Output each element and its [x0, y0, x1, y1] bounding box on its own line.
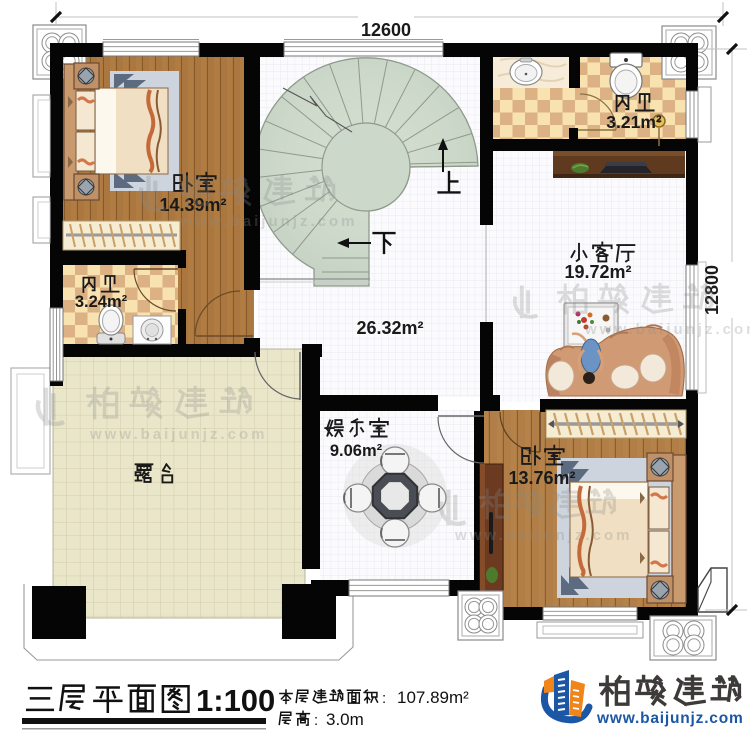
svg-text:www.baijunjz.com: www.baijunjz.com: [454, 527, 632, 544]
svg-text:107.89m²: 107.89m²: [397, 688, 469, 707]
svg-text:12600: 12600: [361, 20, 411, 40]
svg-text:3.21m²: 3.21m²: [606, 112, 662, 132]
svg-text:1:100: 1:100: [196, 683, 275, 718]
svg-text:3.0m: 3.0m: [326, 710, 364, 729]
svg-text:www.baijunjz.com: www.baijunjz.com: [179, 213, 357, 230]
svg-text:www.baijunjz.com: www.baijunjz.com: [596, 710, 744, 727]
svg-text::: :: [382, 690, 386, 707]
svg-text:9.06m²: 9.06m²: [330, 442, 383, 460]
svg-text:www.baijunjz.com: www.baijunjz.com: [584, 321, 750, 338]
svg-text:14.39m²: 14.39m²: [159, 195, 226, 215]
svg-text::: :: [314, 712, 318, 729]
svg-text:26.32m²: 26.32m²: [356, 318, 423, 338]
svg-text:19.72m²: 19.72m²: [564, 262, 631, 282]
svg-text:3.24m²: 3.24m²: [75, 293, 128, 311]
svg-text:www.baijunjz.com: www.baijunjz.com: [89, 426, 267, 443]
svg-text:13.76m²: 13.76m²: [508, 468, 575, 488]
